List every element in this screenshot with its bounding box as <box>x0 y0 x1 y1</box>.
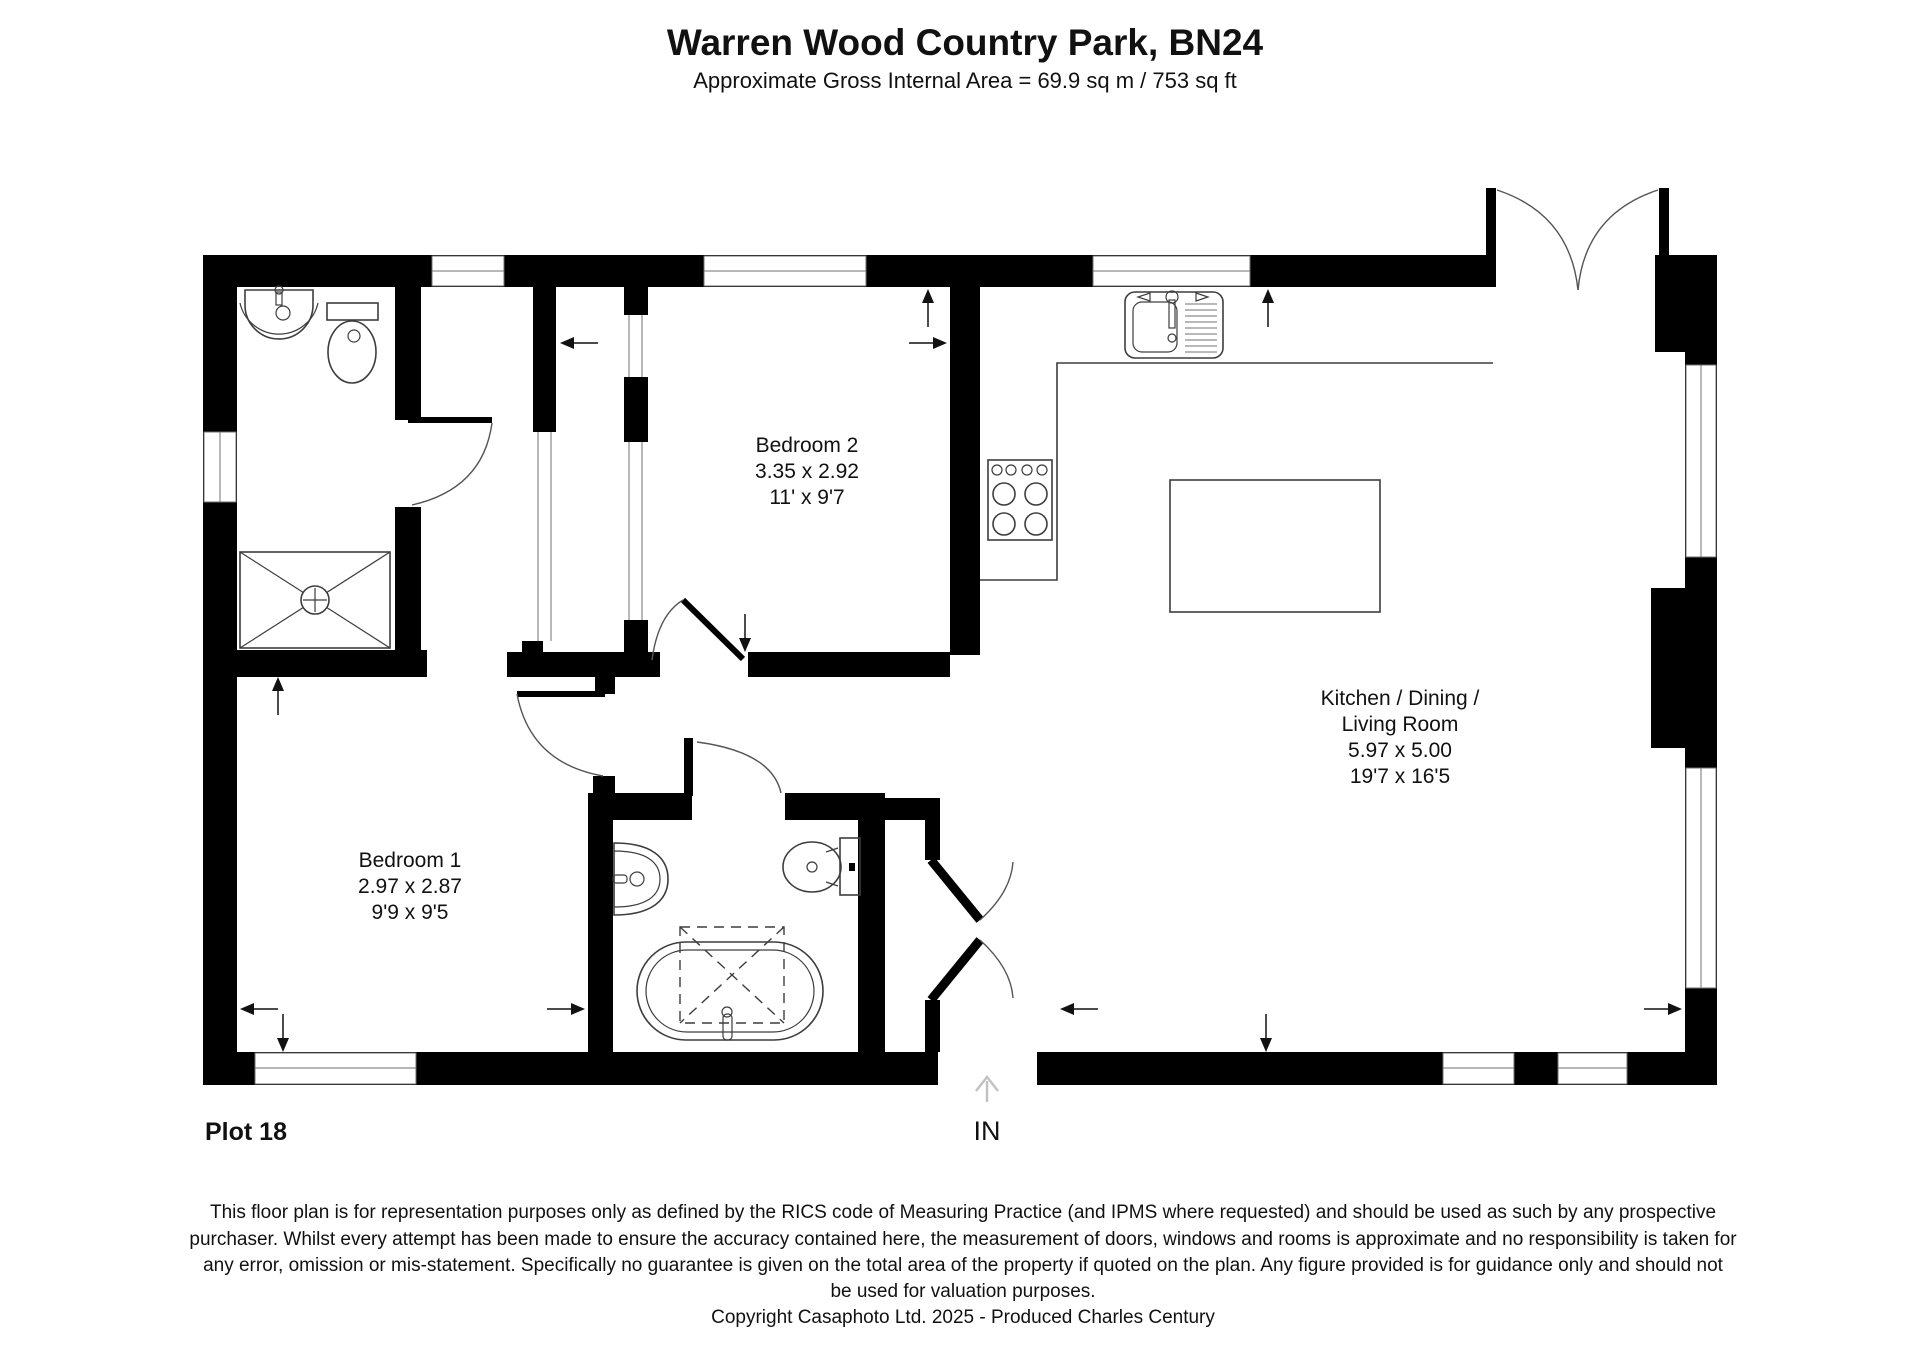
room-name: Bedroom 1 <box>359 849 462 872</box>
room-imperial: 9'9 x 9'5 <box>372 901 449 924</box>
copyright-line: Copyright Casaphoto Ltd. 2025 - Produced… <box>711 1307 1215 1328</box>
window-bottom-3 <box>1558 1053 1627 1084</box>
window-right-1 <box>1686 365 1716 557</box>
bedroom1-door <box>517 694 605 776</box>
entrance-opening <box>938 1052 1037 1085</box>
floorplan-canvas: Warren Wood Country Park, BN24 Approxima… <box>0 0 1920 1356</box>
arrow-down <box>739 614 751 652</box>
room-name-line1: Kitchen / Dining / <box>1321 687 1480 710</box>
room-label-bedroom2: Bedroom 2 3.35 x 2.92 11' x 9'7 <box>755 434 859 509</box>
arrow-up <box>272 677 284 715</box>
window-right-2 <box>1686 768 1716 988</box>
arrow-right <box>909 337 947 349</box>
room-label-kitchen: Kitchen / Dining / Living Room 5.97 x 5.… <box>1321 687 1480 788</box>
entrance-double-door <box>931 860 1013 1000</box>
arrow-right <box>547 1003 585 1015</box>
arrow-left <box>560 337 598 349</box>
ensuite-toilet <box>327 303 378 383</box>
disclaimer: This floor plan is for representation pu… <box>189 1202 1737 1328</box>
bathtub <box>637 927 823 1040</box>
kitchen-island <box>1170 480 1380 612</box>
arrow-right <box>1644 1003 1682 1015</box>
floorplan-page: Warren Wood Country Park, BN24 Approxima… <box>0 0 1920 1356</box>
arrow-down <box>1260 1014 1272 1052</box>
room-name: Bedroom 2 <box>756 434 859 457</box>
window-top-1 <box>432 256 504 286</box>
page-title: Warren Wood Country Park, BN24 <box>667 22 1264 63</box>
arrow-up <box>1262 289 1274 327</box>
ensuite-basin <box>240 286 318 339</box>
bathroom-basin <box>613 843 668 915</box>
entrance-in-marker: IN <box>974 1077 1001 1146</box>
room-imperial: 19'7 x 16'5 <box>1350 765 1450 788</box>
window-top-2 <box>704 256 866 286</box>
room-metric: 3.35 x 2.92 <box>755 460 859 483</box>
arrow-up <box>922 289 934 327</box>
window-top-3 <box>1093 256 1250 286</box>
disclaimer-line: any error, omission or mis-statement. Sp… <box>203 1255 1724 1276</box>
interior-walls <box>203 287 980 1052</box>
room-metric: 5.97 x 5.00 <box>1348 739 1452 762</box>
disclaimer-line: be used for valuation purposes. <box>830 1281 1095 1302</box>
arrow-left <box>1060 1003 1098 1015</box>
bathroom-toilet <box>783 838 860 895</box>
bath-tap <box>723 1014 732 1040</box>
hob <box>988 460 1052 540</box>
window-left-1 <box>204 432 236 502</box>
french-doors <box>1486 188 1669 290</box>
page-subtitle: Approximate Gross Internal Area = 69.9 s… <box>693 68 1237 93</box>
room-imperial: 11' x 9'7 <box>769 486 844 509</box>
shower-tray <box>240 552 390 648</box>
ensuite-door <box>408 420 492 505</box>
plot-label: Plot 18 <box>205 1118 287 1146</box>
disclaimer-line: purchaser. Whilst every attempt has been… <box>189 1229 1737 1250</box>
window-bottom-2 <box>1443 1053 1514 1084</box>
chimney-breast <box>1651 588 1717 748</box>
arrow-left <box>240 1003 278 1015</box>
disclaimer-line: This floor plan is for representation pu… <box>210 1202 1716 1223</box>
bathroom-door <box>684 738 781 796</box>
room-label-bedroom1: Bedroom 1 2.97 x 2.87 9'9 x 9'5 <box>358 849 462 924</box>
kitchen-sink <box>1125 291 1223 358</box>
kitchen-counter <box>980 363 1493 580</box>
room-metric: 2.97 x 2.87 <box>358 875 462 898</box>
window-bottom-1 <box>255 1053 416 1084</box>
arrow-down <box>277 1014 289 1052</box>
entrance-label: IN <box>974 1116 1001 1146</box>
bedroom2-door <box>652 600 743 660</box>
room-name-line2: Living Room <box>1342 713 1459 736</box>
